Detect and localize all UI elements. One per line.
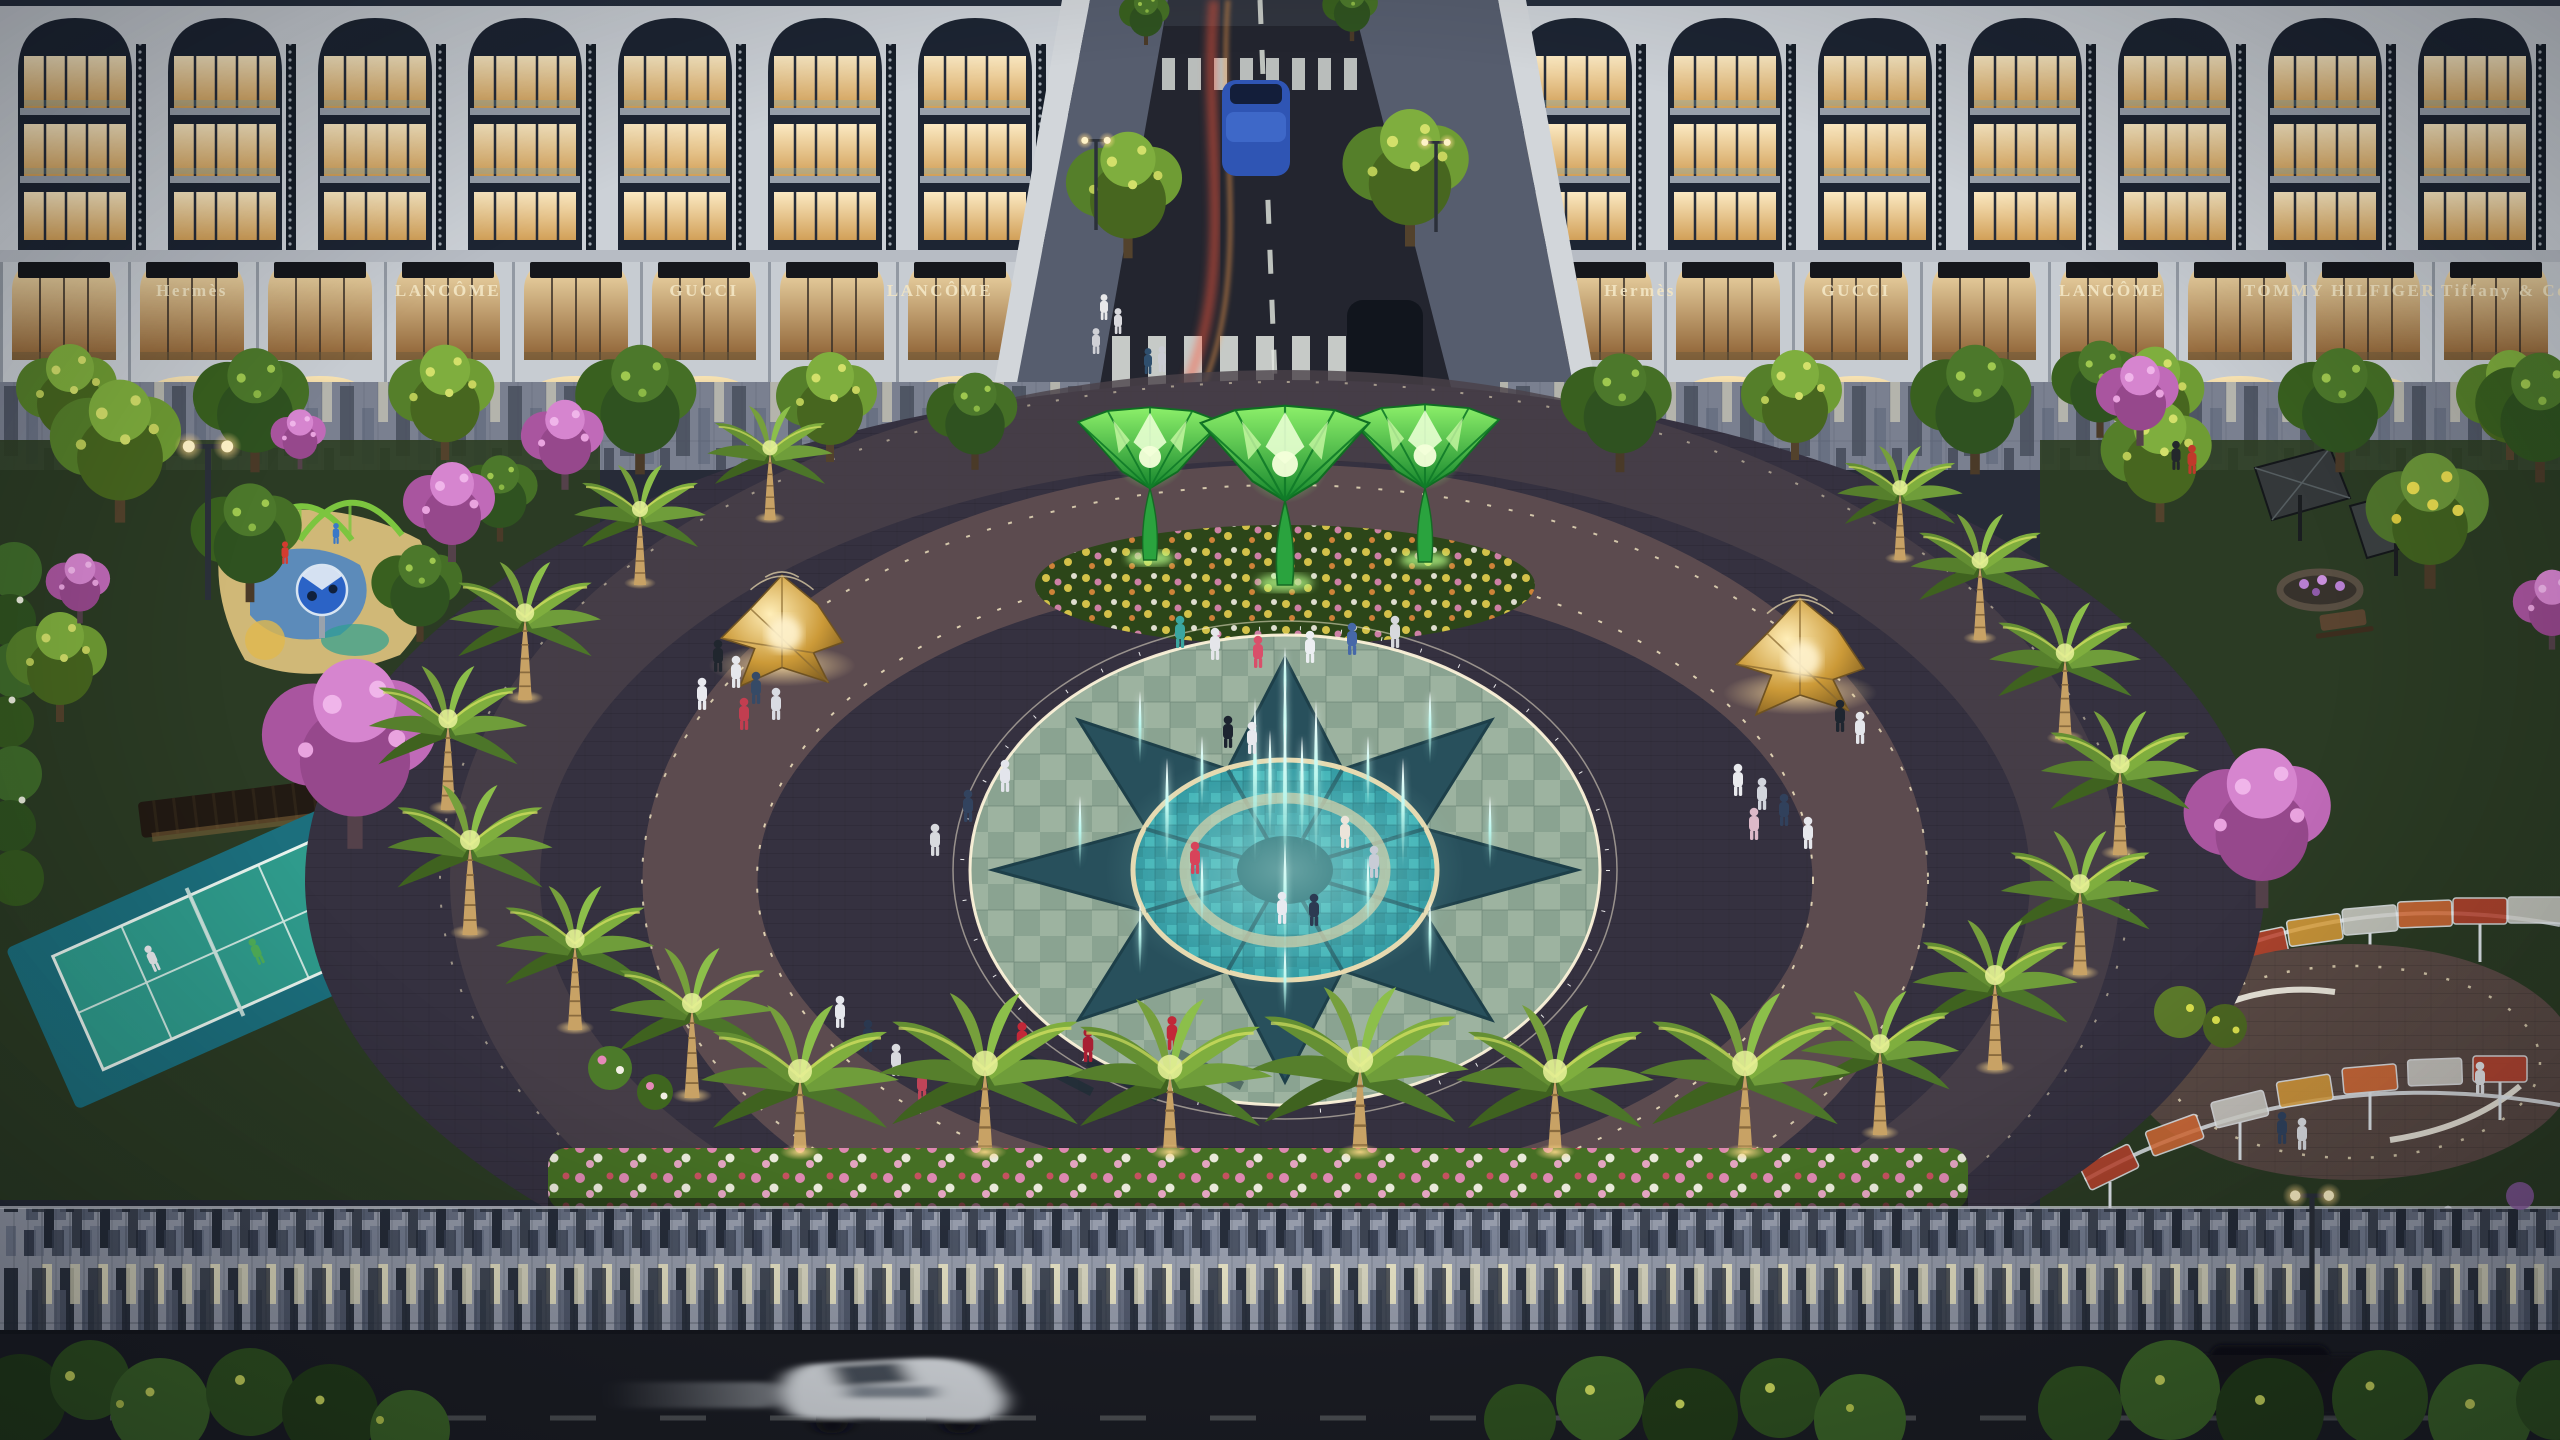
render-canvas: Hermès LANCÔME GUCCI LANCÔME Hermès GUCC… bbox=[0, 0, 2560, 1440]
architectural-render: Hermès LANCÔME GUCCI LANCÔME Hermès GUCC… bbox=[0, 0, 2560, 1440]
vignette bbox=[0, 0, 2560, 1440]
